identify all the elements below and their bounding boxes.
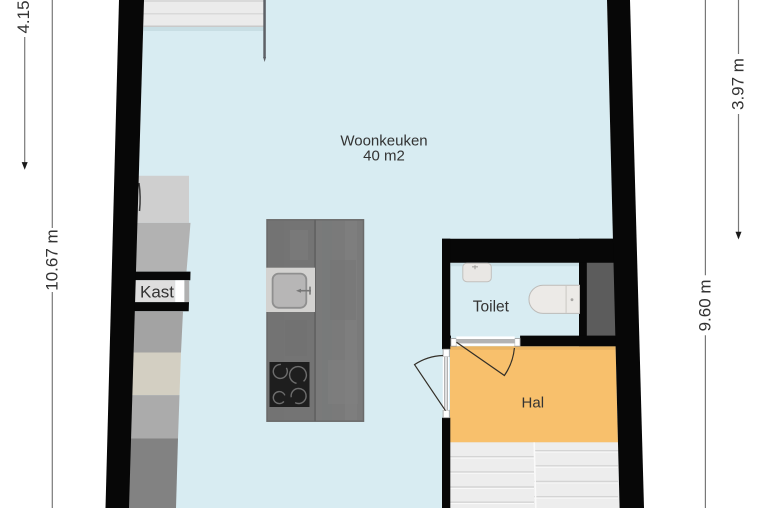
svg-text:Kast: Kast [140,282,174,301]
svg-text:9.60 m: 9.60 m [695,279,714,331]
svg-text:4.15: 4.15 [14,0,33,33]
svg-text:Hal: Hal [522,395,545,412]
svg-text:Toilet: Toilet [473,298,510,315]
svg-text:3.97 m: 3.97 m [728,58,747,110]
svg-text:10.67 m: 10.67 m [42,229,61,290]
svg-text:40 m2: 40 m2 [363,147,405,164]
